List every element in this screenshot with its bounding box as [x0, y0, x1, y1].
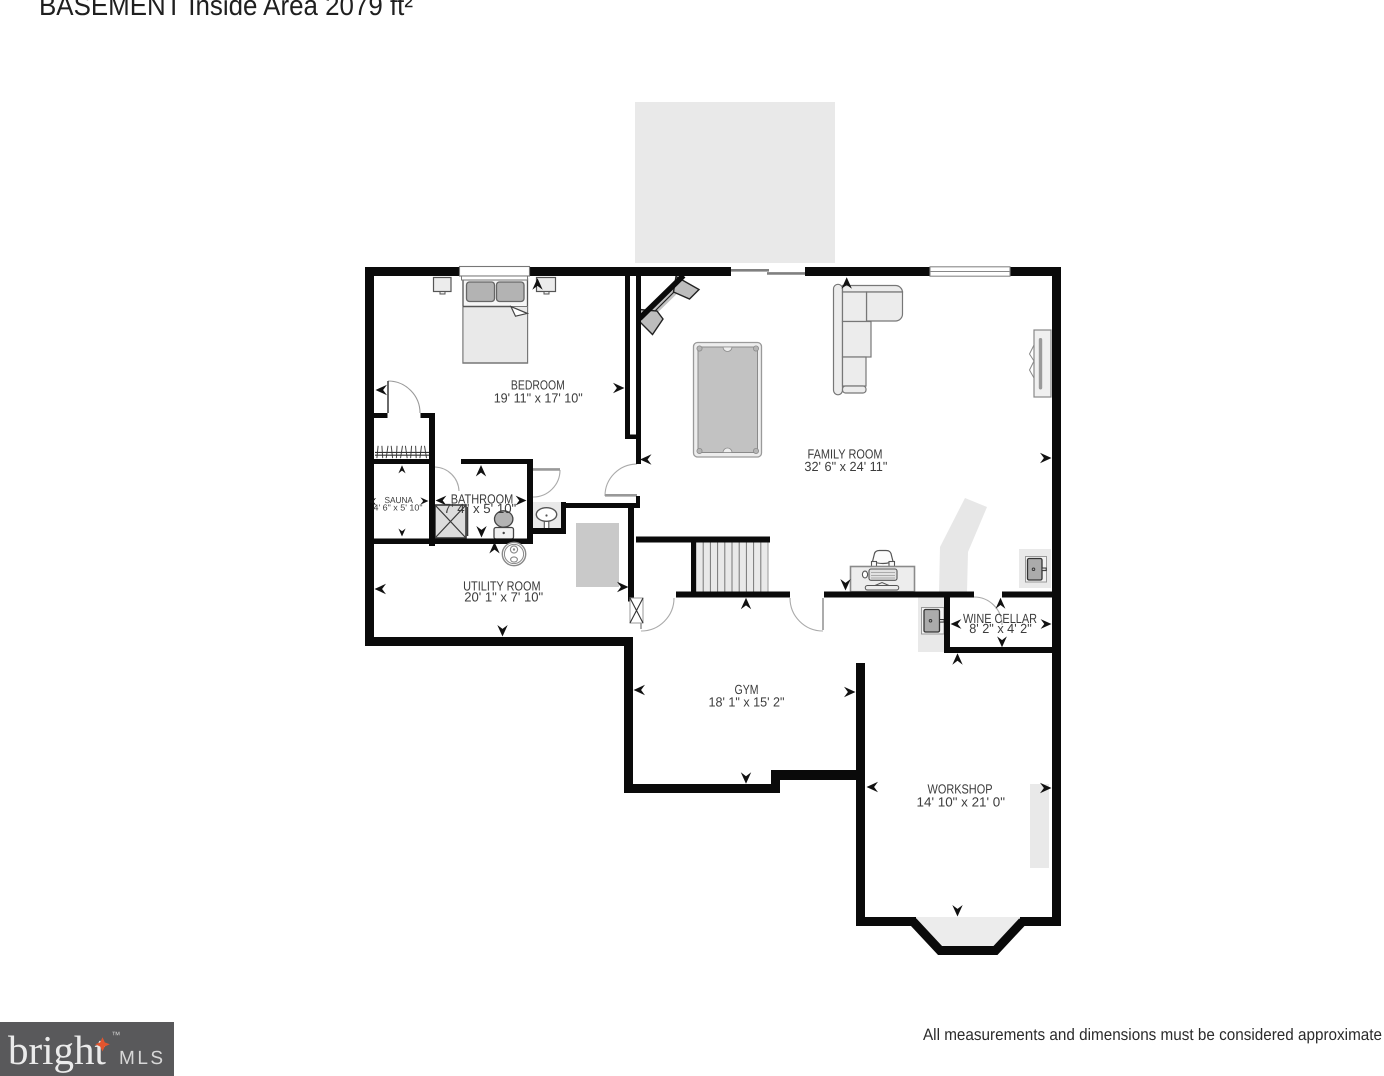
svg-text:All measurements and dimension: All measurements and dimensions must be … — [923, 1026, 1382, 1044]
svg-text:™: ™ — [112, 1030, 121, 1040]
svg-text:32' 6" x 24' 11": 32' 6" x 24' 11" — [804, 459, 887, 474]
svg-text:bright: bright — [8, 1027, 107, 1073]
svg-text:14' 10" x 21' 0": 14' 10" x 21' 0" — [917, 795, 1006, 810]
svg-text:7' 4" x 5' 10": 7' 4" x 5' 10" — [444, 501, 517, 516]
svg-text:8' 2" x 4' 2": 8' 2" x 4' 2" — [969, 621, 1032, 636]
svg-text:4' 6" x 5' 10": 4' 6" x 5' 10" — [374, 503, 423, 513]
svg-text:MLS: MLS — [119, 1048, 166, 1069]
svg-text:20' 1" x 7' 10": 20' 1" x 7' 10" — [464, 589, 543, 604]
svg-text:BASEMENT Inside Area 2079 ft²: BASEMENT Inside Area 2079 ft² — [39, 0, 413, 21]
svg-text:18' 1" x 15' 2": 18' 1" x 15' 2" — [709, 695, 785, 710]
svg-text:19' 11" x 17' 10": 19' 11" x 17' 10" — [494, 391, 583, 406]
